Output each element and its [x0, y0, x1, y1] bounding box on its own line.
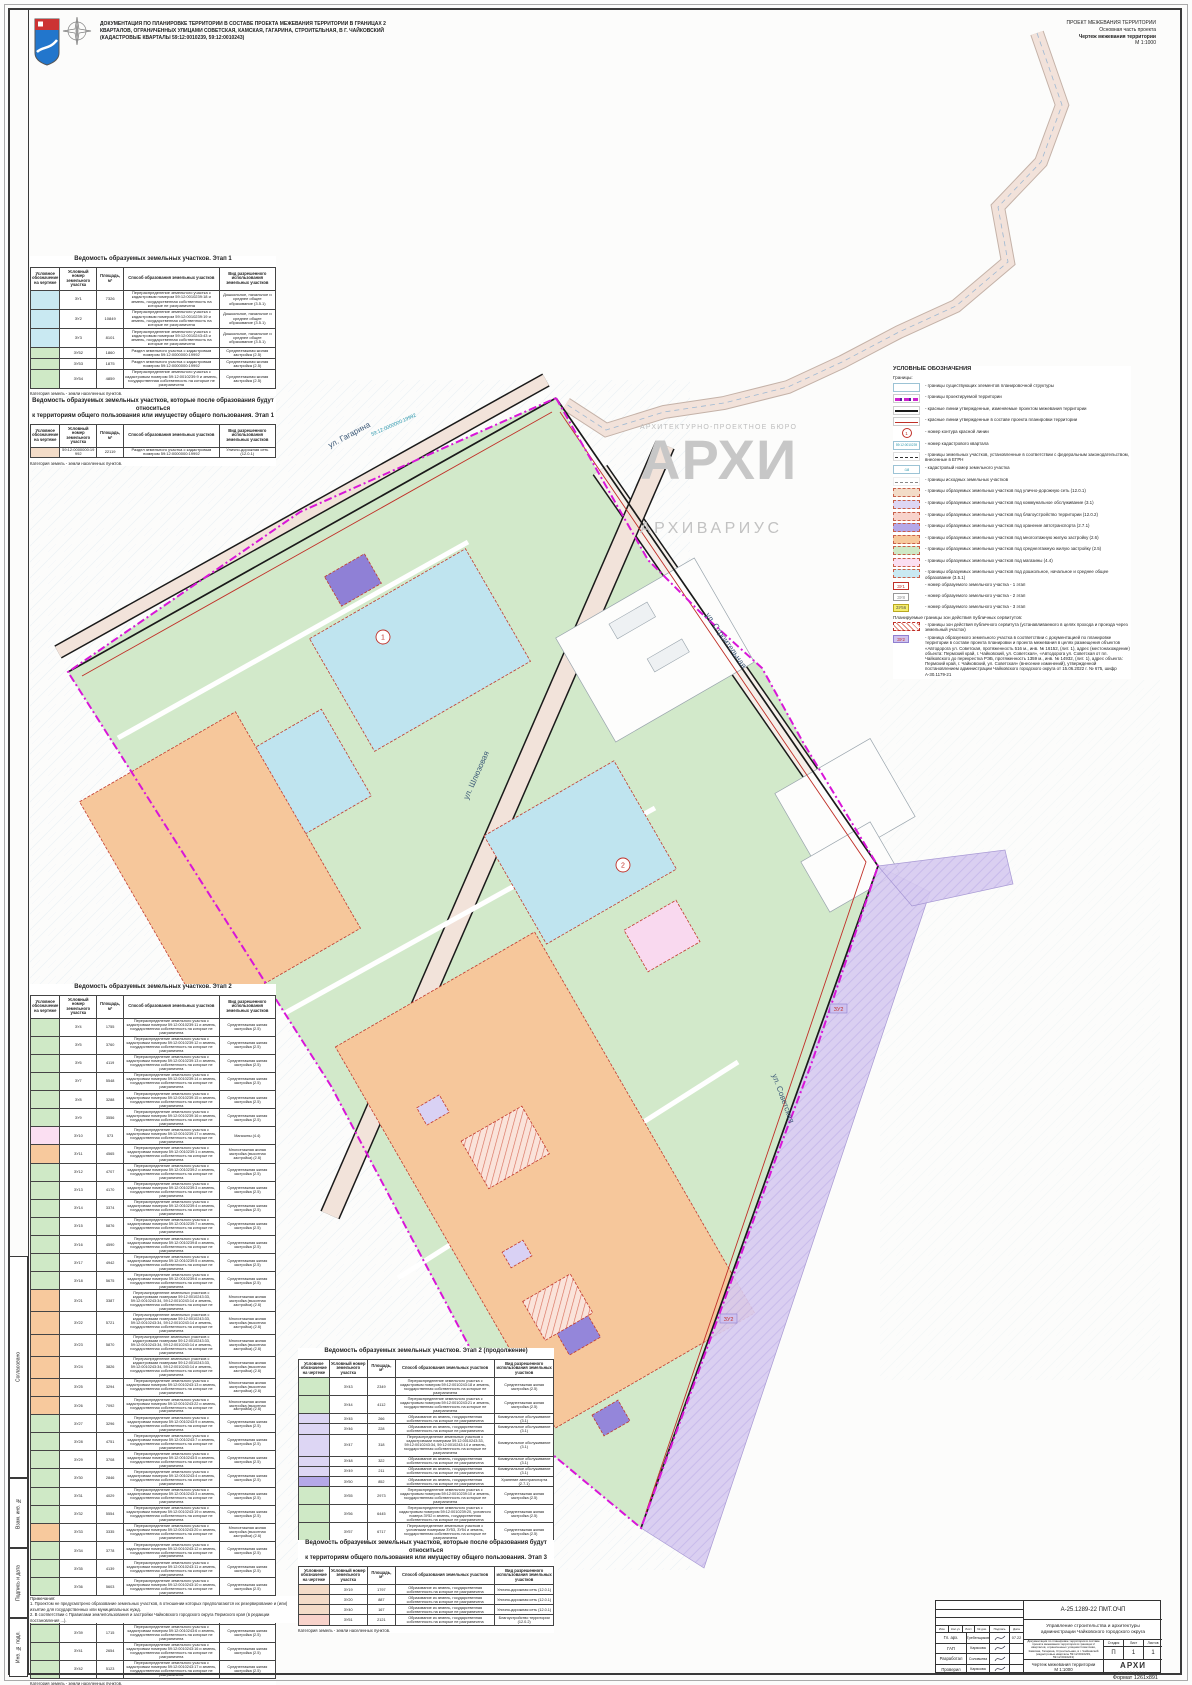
- parcel-color-swatch: [31, 1163, 60, 1181]
- parcel-color-swatch: [299, 1487, 330, 1505]
- legend-item: - границы образуемых земельных участков …: [893, 512, 1131, 521]
- legend-item-label: - границы существующих элементов планиро…: [925, 383, 1054, 388]
- table-row: ЗУ174942Перераспределение земельного уча…: [31, 1254, 276, 1272]
- signature: [989, 1632, 1009, 1643]
- column-header: Площадь, м²: [97, 267, 124, 290]
- parcel-id: ЗУ22: [60, 1312, 97, 1334]
- scale-label: М 1:1000: [896, 40, 1156, 47]
- parcel-id: ЗУ56: [329, 1505, 367, 1523]
- parcel-method: Образование из земель, государственная с…: [395, 1476, 494, 1486]
- parcel-id: ЗУ48: [329, 1456, 367, 1466]
- column-header: Условный номер земельного участка: [60, 424, 97, 447]
- parcel-method: Перераспределение земельного участка с к…: [124, 290, 220, 309]
- parcel-area: 3374: [97, 1199, 124, 1217]
- legend-swatch-line-redold: [893, 417, 920, 426]
- table-row: ЗУ20887Образование из земель, государств…: [299, 1595, 554, 1605]
- parcel-id: ЗУ17: [60, 1254, 97, 1272]
- parcel-use: Среднеэтажная жилая застройка (2.5): [219, 1254, 275, 1272]
- legend-item: ЗУ1- номер образуемого земельного участк…: [893, 582, 1131, 590]
- parcel-color-swatch: [299, 1476, 330, 1486]
- parcel-id: ЗУ52: [60, 348, 97, 359]
- parcel-use: Среднеэтажная жилая застройка (2.5): [495, 1378, 554, 1396]
- table-row: ЗУ185675Перераспределение земельного уча…: [31, 1272, 276, 1290]
- parcel-use: Улично-дорожная сеть (12.0.1): [495, 1605, 554, 1615]
- notes: Примечания: 1. Проектом не предусмотрено…: [30, 1596, 298, 1623]
- legend-item-label: - кадастровый номер земельного участка: [925, 465, 1010, 470]
- legend-item: - границы земельных участков, установлен…: [893, 452, 1131, 462]
- parcel-method: Перераспределение земельного участка с к…: [124, 1127, 220, 1145]
- parcel-use: Улично-дорожная сеть (12.0.1): [495, 1595, 554, 1605]
- parcel-color-swatch: [31, 1334, 60, 1356]
- parcel-use: Среднеэтажная жилая застройка (2.5): [219, 1505, 275, 1523]
- parcel-area: 1755: [97, 1018, 124, 1036]
- sheet-value: 1: [1123, 1646, 1143, 1659]
- parcel-use: Многоэтажная жилая застройка (высотная з…: [219, 1290, 275, 1312]
- parcel-id: ЗУ57: [329, 1523, 367, 1541]
- parcel-use: Среднеэтажная жилая застройка (2.5): [219, 1272, 275, 1290]
- parcel-use: Хранение автотранспорта (2.7.1): [495, 1476, 554, 1486]
- role-date: 07.22: [1009, 1632, 1023, 1643]
- legend-item: - границы образуемых земельных участков …: [893, 523, 1131, 532]
- parcel-use: Среднеэтажная жилая застройка (2.5): [219, 1469, 275, 1487]
- parcel-area: 5548: [97, 1072, 124, 1090]
- table-row: ЗУ155876Перераспределение земельного уча…: [31, 1217, 276, 1235]
- table-row: ЗУ48322Образование из земель, государств…: [299, 1456, 554, 1466]
- parcel-use: Среднеэтажная жилая застройка (2.5): [219, 1642, 275, 1660]
- parcel-id: 59:12:0000000:19992: [60, 447, 97, 458]
- parcel-area: 4170: [97, 1181, 124, 1199]
- parcel-id: ЗУ29: [60, 1451, 97, 1469]
- parcel-method: Перераспределение земельного участка с к…: [124, 1378, 220, 1396]
- parcel-area: 7092: [97, 1396, 124, 1414]
- parcel-area: 5603: [97, 1578, 124, 1596]
- parcel-id: ЗУ8: [60, 1091, 97, 1109]
- table-row: ЗУ293708Перераспределение земельного уча…: [31, 1451, 276, 1469]
- legend-swatch-fill-blag: [893, 512, 920, 521]
- parcel-id: ЗУ49: [329, 1466, 367, 1476]
- svg-text:2: 2: [621, 863, 625, 870]
- column-header: Условный номер земельного участка: [329, 1566, 367, 1585]
- legend-item: - границы образуемых земельных участков …: [893, 546, 1131, 555]
- parcel-area: 3288: [97, 1091, 124, 1109]
- table-row: ЗУ10573Перераспределение земельного учас…: [31, 1127, 276, 1145]
- parcel-use: Среднеэтажная жилая застройка (2.5): [219, 1236, 275, 1254]
- legend-item-label: - границы образуемых земельных участков …: [925, 523, 1090, 528]
- table-title: Ведомость образуемых земельных участков,…: [298, 1540, 554, 1563]
- legend-swatch-zu-yellow: ЗУ56: [893, 604, 909, 612]
- parcel-area: 3294: [97, 1378, 124, 1396]
- parcel-use: Среднеэтажная жилая застройка (2.5): [219, 358, 275, 369]
- parcel-method: Перераспределение земельного участка с к…: [124, 1505, 220, 1523]
- parcel-area: 228: [367, 1424, 395, 1434]
- legend-item-label: - границы образуемых земельных участков …: [925, 546, 1101, 551]
- document-number: А-25.1289-22 ПМТ.ОЧП: [1023, 1601, 1162, 1619]
- table-row: ЗУ225721Перераспределение земельных учас…: [31, 1312, 276, 1334]
- parcel-color-swatch: [299, 1456, 330, 1466]
- parcel-id: ЗУ42: [60, 1660, 97, 1678]
- parcel-area: 5675: [97, 1272, 124, 1290]
- parcel-method: Перераспределение земельного участка с к…: [395, 1505, 494, 1523]
- parcel-table: Условное обозначение на чертежеУсловный …: [298, 1566, 554, 1626]
- parcel-id: ЗУ44: [329, 1396, 367, 1414]
- parcel-id: ЗУ51: [329, 1615, 367, 1625]
- parcel-method: Перераспределение земельного участка с к…: [124, 1433, 220, 1451]
- firm-logo-subtext: архивариус: [1118, 1670, 1148, 1674]
- parcel-color-swatch: [31, 1036, 60, 1054]
- parcel-area: 573: [97, 1127, 124, 1145]
- legend-item-label: - границы образуемых земельных участков …: [925, 535, 1099, 540]
- legend-item: ЗУ2- граница образуемого земельного учас…: [893, 635, 1131, 677]
- table-row: ЗУ552973Перераспределение земельного уча…: [299, 1487, 554, 1505]
- project-type: ПРОЕКТ МЕЖЕВАНИЯ ТЕРРИТОРИИ: [896, 20, 1156, 27]
- firm-logo: АРХИ архивариус: [1103, 1659, 1162, 1674]
- parcel-color-swatch: [299, 1595, 330, 1605]
- parcel-color-swatch: [31, 1660, 60, 1678]
- parcel-use: Среднеэтажная жилая застройка (2.5): [219, 1624, 275, 1642]
- parcel-color-swatch: [31, 1312, 60, 1334]
- legend-swatch-hatch: [893, 622, 920, 631]
- table-row: ЗУ53760Перераспределение земельного учас…: [31, 1036, 276, 1054]
- parcel-id: ЗУ34: [60, 1541, 97, 1559]
- table-row: ЗУ354139Перераспределение земельного уча…: [31, 1560, 276, 1578]
- parcel-color-swatch: [299, 1466, 330, 1476]
- legend-item: - красные линии утвержденные в составе п…: [893, 417, 1131, 426]
- sheet-title: ДОКУМЕНТАЦИЯ ПО ПЛАНИРОВКЕ ТЕРРИТОРИИ В …: [100, 21, 520, 41]
- parcel-method: Перераспределение земельного участка с к…: [124, 1091, 220, 1109]
- parcel-color-swatch: [31, 1217, 60, 1235]
- parcel-color-swatch: [31, 1451, 60, 1469]
- legend-item-label: - красные линии утвержденные, изменяемые…: [925, 406, 1087, 411]
- parcel-method: Перераспределение земельного участка с к…: [124, 1578, 220, 1596]
- parcel-area: 8101: [97, 329, 124, 348]
- parcel-table: Условное обозначение на чертежеУсловный …: [298, 1359, 554, 1542]
- parcel-method: Раздел земельного участка с кадастровым …: [124, 348, 220, 359]
- parcel-method: Образование из земель, государственная с…: [395, 1414, 494, 1424]
- legend-swatch-line-rednew: [893, 406, 920, 415]
- legend-item: :18- кадастровый номер земельного участк…: [893, 465, 1131, 474]
- parcel-area: 4590: [97, 1236, 124, 1254]
- parcel-color-swatch: [31, 1290, 60, 1312]
- table-stage3-public: Ведомость образуемых земельных участков,…: [298, 1540, 554, 1633]
- table-row: ЗУ50852Образование из земель, государств…: [299, 1476, 554, 1486]
- parcel-method: Перераспределение земельного участка с к…: [124, 1054, 220, 1072]
- parcel-id: ЗУ5: [60, 1036, 97, 1054]
- legend-swatch-zu-lav: ЗУ2: [893, 635, 909, 643]
- stamp-label: Взам. инв. №: [10, 1479, 27, 1547]
- table-row: ЗУ267092Перераспределение земельного уча…: [31, 1396, 276, 1414]
- col-ndok: № док.: [974, 1625, 989, 1632]
- drawing-sheet: 1 2 ул. Гагарина ул. Шлюзовая ул. Строит…: [0, 0, 1192, 1685]
- parcel-id: ЗУ53: [60, 358, 97, 369]
- parcel-id: ЗУ19: [329, 1585, 367, 1595]
- table-row: ЗУ191797Образование из земель, государст…: [299, 1585, 554, 1595]
- legend-section-header: Планируемые границы зон действия публичн…: [893, 615, 1131, 620]
- parcel-method: Перераспределение земельного участка с к…: [124, 309, 220, 328]
- legend-swatch-kn: :18: [893, 465, 920, 474]
- parcel-area: 3296: [97, 1415, 124, 1433]
- parcel-id: ЗУ41: [60, 1642, 97, 1660]
- table-title: Ведомость образуемых земельных участков.…: [298, 1348, 554, 1356]
- role-name: Карякова: [966, 1643, 989, 1654]
- table-row: ЗУ425123Перераспределение земельного уча…: [31, 1660, 276, 1678]
- parcel-area: 3556: [97, 1109, 124, 1127]
- legend-item-label: - границы образуемых земельных участков …: [925, 488, 1086, 493]
- parcel-area: 887: [367, 1595, 395, 1605]
- stage-value: П: [1103, 1646, 1123, 1659]
- parcel-color-swatch: [31, 1624, 60, 1642]
- table-row: ЗУ512121Образование из земель, государст…: [299, 1615, 554, 1625]
- parcel-id: ЗУ39: [60, 1624, 97, 1642]
- signature: [989, 1664, 1009, 1675]
- parcel-use: Среднеэтажная жилая застройка (2.5): [219, 1560, 275, 1578]
- parcel-use: Среднеэтажная жилая застройка (2.5): [219, 1660, 275, 1678]
- parcel-color-swatch: [31, 309, 60, 328]
- stamp-inv-podl: Инв. № подл.: [9, 1618, 28, 1677]
- parcel-color-swatch: [31, 1145, 60, 1163]
- parcel-method: Перераспределение земельного участка с к…: [124, 369, 220, 388]
- parcel-id: ЗУ7: [60, 1072, 97, 1090]
- legend-swatch-fill-auto: [893, 523, 920, 532]
- parcel-area: 4112: [367, 1396, 395, 1414]
- parcel-id: ЗУ40: [329, 1605, 367, 1615]
- parcel-use: Коммунальное обслуживание (3.1): [495, 1466, 554, 1476]
- parcel-method: Перераспределение земельного участка с к…: [124, 1072, 220, 1090]
- parcel-color-swatch: [31, 1642, 60, 1660]
- table-row: ЗУ333335Перераспределение земельного уча…: [31, 1523, 276, 1541]
- legend-item: - границы образуемых земельных участков …: [893, 535, 1131, 544]
- stage-label: Стадия: [1103, 1639, 1123, 1646]
- column-header: Условное обозначение на чертеже: [31, 424, 60, 447]
- servitude-tag-1: ЗУ2: [830, 1004, 847, 1013]
- legend-swatch-zu-gray: ЗУ8: [893, 593, 909, 601]
- parcel-id: ЗУ11: [60, 1145, 97, 1163]
- legend-item: 59:12:0010239- номер кадастрового кварта…: [893, 441, 1131, 450]
- parcel-id: ЗУ18: [60, 1272, 97, 1290]
- parcel-area: 2349: [367, 1378, 395, 1396]
- table-row: ЗУ444112Перераспределение земельного уча…: [299, 1396, 554, 1414]
- parcel-use: Среднеэтажная жилая застройка (2.5): [219, 1487, 275, 1505]
- legend: УСЛОВНЫЕ ОБОЗНАЧЕНИЯ Границы:- границы с…: [893, 366, 1131, 679]
- parcel-color-swatch: [31, 1254, 60, 1272]
- table-row: ЗУ93556Перераспределение земельного учас…: [31, 1109, 276, 1127]
- parcel-method: Перераспределение земельных участков с к…: [395, 1434, 494, 1456]
- table-row: ЗУ213387Перераспределение земельных учас…: [31, 1290, 276, 1312]
- parcel-area: 318: [367, 1434, 395, 1456]
- table-row: ЗУ64119Перераспределение земельного учас…: [31, 1054, 276, 1072]
- parcel-color-swatch: [299, 1424, 330, 1434]
- parcel-area: 3708: [97, 1451, 124, 1469]
- parcel-method: Перераспределение земельного участка с к…: [395, 1378, 494, 1396]
- parcel-area: 4029: [97, 1487, 124, 1505]
- table-row: 59:12:0000000:1999222119Раздел земельног…: [31, 447, 276, 458]
- parcel-color-swatch: [31, 1560, 60, 1578]
- project-part: Основная часть проекта: [896, 27, 1156, 34]
- legend-swatch-dash-egrn: [893, 452, 920, 461]
- parcel-method: Перераспределение земельного участка с к…: [124, 1018, 220, 1036]
- parcel-area: 4565: [97, 1145, 124, 1163]
- parcel-color-swatch: [31, 1578, 60, 1596]
- sheets-label: Листов: [1143, 1639, 1162, 1646]
- role-name: Карякова: [966, 1664, 989, 1675]
- parcel-area: 10849: [97, 309, 124, 328]
- parcel-id: ЗУ33: [60, 1523, 97, 1541]
- legend-item-label: - границы исходных земельных участков: [925, 477, 1008, 482]
- parcel-area: 7326: [97, 290, 124, 309]
- parcel-area: 4119: [97, 1054, 124, 1072]
- coat-of-arms: [34, 18, 60, 66]
- parcel-id: ЗУ14: [60, 1199, 97, 1217]
- parcel-id: ЗУ46: [329, 1424, 367, 1434]
- parcel-color-swatch: [31, 1018, 60, 1036]
- parcel-method: Образование из земель, государственная с…: [395, 1585, 494, 1595]
- parcel-color-swatch: [299, 1396, 330, 1414]
- parcel-use: Коммунальное обслуживание (3.1): [495, 1456, 554, 1466]
- table-row: ЗУ143374Перераспределение земельного уча…: [31, 1199, 276, 1217]
- column-header: Условный номер земельного участка: [60, 267, 97, 290]
- parcel-method: Перераспределение земельных участков с к…: [124, 1356, 220, 1378]
- parcel-method: Перераспределение земельных участков с у…: [395, 1523, 494, 1541]
- parcel-method: Перераспределение земельных участков с к…: [124, 1312, 220, 1334]
- parcel-area: 6445: [367, 1505, 395, 1523]
- role-label: Проверил: [936, 1664, 966, 1675]
- column-header: Способ образования земельных участков: [124, 424, 220, 447]
- parcel-use: Дошкольное, начальное и среднее общее об…: [219, 309, 275, 328]
- role-label: Разработал: [936, 1653, 966, 1664]
- parcel-color-swatch: [31, 1505, 60, 1523]
- legend-swatch-line-project: [893, 394, 920, 403]
- col-podpis: Подпись: [989, 1625, 1009, 1632]
- parcel-use: Среднеэтажная жилая застройка (2.5): [495, 1396, 554, 1414]
- legend-item: ЗУ56- номер образуемого земельного участ…: [893, 604, 1131, 612]
- col-izm: Изм.: [936, 1625, 948, 1632]
- parcel-use: Многоэтажная жилая застройка (высотная з…: [219, 1356, 275, 1378]
- parcel-color-swatch: [31, 1523, 60, 1541]
- parcel-id: ЗУ25: [60, 1378, 97, 1396]
- column-header: Площадь, м²: [367, 1359, 395, 1378]
- table-row: ЗУ544859Перераспределение земельного уча…: [31, 369, 276, 388]
- table-stage1: Ведомость образуемых земельных участков.…: [30, 256, 276, 396]
- parcel-area: 4751: [97, 1433, 124, 1451]
- table-row: ЗУ235870Перераспределение земельных учас…: [31, 1334, 276, 1356]
- parcel-id: ЗУ15: [60, 1217, 97, 1235]
- table-row: ЗУ83288Перераспределение земельного учас…: [31, 1091, 276, 1109]
- legend-item: 1- номер контура красной линии: [893, 429, 1131, 438]
- parcel-area: 5870: [97, 1334, 124, 1356]
- legend-swatch-fill-kommun: [893, 500, 920, 509]
- parcel-color-swatch: [31, 1356, 60, 1378]
- parcel-color-swatch: [31, 1181, 60, 1199]
- parcel-use: Среднеэтажная жилая застройка (2.5): [219, 1217, 275, 1235]
- legend-item: - границы образуемых земельных участков …: [893, 558, 1131, 567]
- table-title: Ведомость образуемых земельных участков.…: [30, 256, 276, 264]
- parcel-color-swatch: [31, 1199, 60, 1217]
- parcel-id: ЗУ23: [60, 1334, 97, 1356]
- parcel-color-swatch: [31, 369, 60, 388]
- parcel-method: Перераспределение земельного участка с к…: [124, 1272, 220, 1290]
- parcel-color-swatch: [31, 1127, 60, 1145]
- table-footer: Категория земель - земли населенных пунк…: [298, 1628, 554, 1633]
- parcel-area: 3387: [97, 1290, 124, 1312]
- parcel-area: 1797: [367, 1585, 395, 1595]
- column-header: Вид разрешенного использования земельных…: [495, 1359, 554, 1378]
- parcel-use: Среднеэтажная жилая застройка (2.5): [495, 1505, 554, 1523]
- parcel-area: 211: [367, 1466, 395, 1476]
- sheet-subtitle: ПРОЕКТ МЕЖЕВАНИЯ ТЕРРИТОРИИ Основная час…: [896, 20, 1156, 47]
- parcel-color-swatch: [31, 1091, 60, 1109]
- parcel-id: ЗУ45: [329, 1414, 367, 1424]
- parcel-color-swatch: [31, 1469, 60, 1487]
- parcel-color-swatch: [31, 290, 60, 309]
- table-row: ЗУ302846Перераспределение земельного уча…: [31, 1469, 276, 1487]
- parcel-id: ЗУ10: [60, 1127, 97, 1145]
- legend-swatch-circ: 1: [893, 429, 920, 438]
- column-header: Вид разрешенного использования земельных…: [219, 267, 275, 290]
- parcel-use: Многоэтажная жилая застройка (высотная з…: [219, 1396, 275, 1414]
- legend-swatch-fill-obr: [893, 569, 920, 578]
- parcel-use: Среднеэтажная жилая застройка (2.5): [219, 1091, 275, 1109]
- parcel-method: Перераспределение земельного участка с к…: [124, 1217, 220, 1235]
- parcel-id: ЗУ12: [60, 1163, 97, 1181]
- legend-item: - красные линии утвержденные, изменяемые…: [893, 406, 1131, 415]
- parcel-use: Среднеэтажная жилая застройка (2.5): [495, 1523, 554, 1541]
- parcel-id: ЗУ36: [60, 1578, 97, 1596]
- parcel-use: Коммунальное обслуживание (3.1): [495, 1434, 554, 1456]
- parcel-area: 1875: [97, 358, 124, 369]
- parcel-id: ЗУ21: [60, 1290, 97, 1312]
- table-row: ЗУ134170Перераспределение земельного уча…: [31, 1181, 276, 1199]
- legend-item: ЗУ8- номер образуемого земельного участк…: [893, 593, 1131, 601]
- column-header: Способ образования земельных участков: [124, 267, 220, 290]
- drawing-name: Чертеж межевания территории: [896, 34, 1156, 41]
- parcel-use: Среднеэтажная жилая застройка (2.5): [219, 1181, 275, 1199]
- legend-item: - границы исходных земельных участков: [893, 477, 1131, 486]
- legend-item-label: - номер контура красной линии: [925, 429, 989, 434]
- parcel-color-swatch: [31, 1487, 60, 1505]
- stamp-podpis-data: Подпись и дата: [9, 1548, 28, 1618]
- parcel-area: 5876: [97, 1217, 124, 1235]
- column-header: Условное обозначение на чертеже: [299, 1359, 330, 1378]
- legend-swatch-zu-red: ЗУ1: [893, 582, 909, 590]
- parcel-use: Многоэтажная жилая застройка (высотная з…: [219, 1523, 275, 1541]
- legend-swatch-fill-mag: [893, 558, 920, 567]
- parcel-color-swatch: [31, 1109, 60, 1127]
- parcel-method: Перераспределение земельного участка с к…: [124, 1181, 220, 1199]
- parcel-id: ЗУ16: [60, 1236, 97, 1254]
- parcel-id: ЗУ30: [60, 1469, 97, 1487]
- table-row: ЗУ47318Перераспределение земельных участ…: [299, 1434, 554, 1456]
- role-name: Соловьева: [966, 1653, 989, 1664]
- parcel-color-swatch: [299, 1505, 330, 1523]
- parcel-use: Многоэтажная жилая застройка (высотная з…: [219, 1312, 275, 1334]
- legend-swatch-kv: 59:12:0010239: [893, 441, 920, 450]
- parcel-area: 2973: [367, 1487, 395, 1505]
- parcel-area: 4707: [97, 1163, 124, 1181]
- stamp-label: Согласовано: [10, 1257, 27, 1477]
- parcel-table: Условное обозначение на чертежеУсловный …: [30, 424, 276, 459]
- parcel-id: ЗУ1: [60, 290, 97, 309]
- table-row: ЗУ365603Перераспределение земельного уча…: [31, 1578, 276, 1596]
- parcel-color-swatch: [31, 1415, 60, 1433]
- parcel-method: Перераспределение земельного участка с к…: [124, 1145, 220, 1163]
- legend-item-label: - граница образуемого земельного участка…: [925, 635, 1131, 677]
- column-header: Вид разрешенного использования земельных…: [495, 1566, 554, 1585]
- table-row: ЗУ253294Перераспределение земельного уча…: [31, 1378, 276, 1396]
- parcel-use: Среднеэтажная жилая застройка (2.5): [219, 1072, 275, 1090]
- table-row: ЗУ325554Перераспределение земельного уча…: [31, 1505, 276, 1523]
- table-row: ЗУ273296Перераспределение земельного уча…: [31, 1415, 276, 1433]
- parcel-method: Перераспределение земельного участка с к…: [124, 1396, 220, 1414]
- table-footer: Категория земель - земли населенных пунк…: [30, 461, 276, 466]
